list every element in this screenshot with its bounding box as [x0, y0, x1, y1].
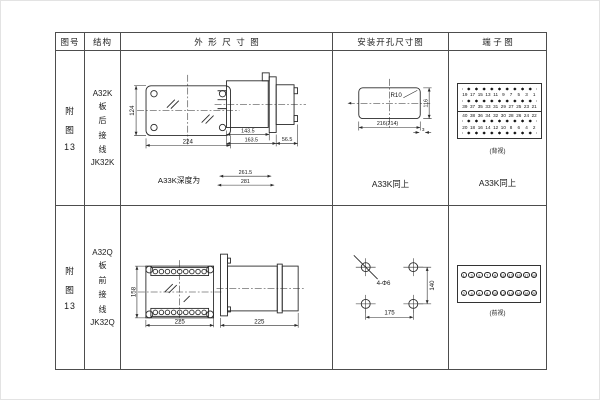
- side-view: [218, 73, 298, 133]
- terminal-number: 26: [515, 113, 523, 118]
- terminal-circle-row: 2468101214161820: [458, 290, 540, 297]
- row2-outline-drawing: 158 225 225: [121, 206, 332, 369]
- header-label: 端子图: [480, 36, 516, 48]
- terminal-number-row: 39373533312927252321: [461, 104, 538, 109]
- terminal-circle: 11: [500, 272, 507, 279]
- terminal-number: 6: [515, 125, 523, 130]
- terminal-number: 34: [484, 113, 492, 118]
- dim-label-depth1: 261.5: [239, 170, 252, 176]
- terminal-number: 4: [523, 125, 531, 130]
- terminal-circle: 3: [468, 272, 475, 279]
- terminal-number: 19: [461, 92, 469, 97]
- structure-line: 接: [99, 289, 107, 300]
- terminal-circle: 20: [531, 290, 538, 297]
- dim-label-rear-depth: 56.5: [282, 137, 292, 143]
- terminal-number: 24: [523, 113, 531, 118]
- terminal-number: 12: [492, 125, 500, 130]
- terminal-circle: 6: [476, 290, 483, 297]
- header-label: 外形尺寸图: [189, 36, 265, 48]
- terminal-number-row: 2018161412108642: [461, 125, 538, 130]
- terminal-number-row: 191715131197531: [461, 92, 538, 97]
- terminal-number: 15: [476, 92, 484, 97]
- terminal-number: 25: [515, 104, 523, 109]
- terminal-dot-row: [462, 119, 537, 123]
- structure-line: 前: [99, 275, 107, 286]
- dim-label-radius: R10: [391, 92, 403, 99]
- dim-label-case-depth: 143.5: [241, 128, 254, 134]
- dim-label-height: 158: [130, 286, 137, 297]
- install-same-note: A33K同上: [333, 178, 448, 190]
- terminal-dot-row: [462, 87, 537, 91]
- row2-terminal-cell: 135791113151719 2468101214161820 (前视): [449, 206, 546, 369]
- spec-sheet-page: 图号 结构 外形尺寸图 安装开孔尺寸图 端子图 附图13 A32K板后接线JK3…: [0, 0, 600, 400]
- terminal-number: 30: [500, 113, 508, 118]
- terminal-circle: 8: [484, 290, 491, 297]
- structure-line: 线: [99, 304, 107, 315]
- terminal-circle-row: 135791113151719: [458, 272, 540, 279]
- terminal-number: 16: [476, 125, 484, 130]
- side-view: [221, 254, 299, 316]
- terminal-number: 7: [507, 92, 515, 97]
- terminal-dot-row: [462, 99, 537, 103]
- terminal-circle: 15: [515, 272, 522, 279]
- terminal-number: 31: [492, 104, 500, 109]
- structure: A32K板后接线JK32K: [85, 51, 120, 205]
- terminal-number: 32: [492, 113, 500, 118]
- row2-install-drawing: 4-Φ6 175 140: [333, 206, 448, 369]
- terminal-dot-row: [462, 131, 537, 135]
- row1-terminal-cell: 191715131197531 39373533312927252321 403…: [449, 51, 546, 206]
- terminal-number: 10: [500, 125, 508, 130]
- terminal-number: 40: [461, 113, 469, 118]
- row1-outline-drawing: 124 224 143.5 163.5: [121, 51, 332, 205]
- terminal-number: 36: [476, 113, 484, 118]
- header-outline: 外形尺寸图: [121, 33, 333, 51]
- row2-install-cell: 4-Φ6 175 140: [333, 206, 449, 369]
- terminal-number: 1: [530, 92, 538, 97]
- structure-line: 板: [99, 260, 107, 271]
- terminal-number: 37: [469, 104, 477, 109]
- terminal-circle: 5: [476, 272, 483, 279]
- terminal-number: 17: [469, 92, 477, 97]
- row1-structure-cell: A32K板后接线JK32K: [85, 51, 121, 206]
- dim-label-hole-height: 140: [429, 280, 436, 291]
- fig-no-line: 13: [64, 142, 76, 152]
- structure-line: 接: [99, 130, 107, 141]
- terminal-number: 14: [484, 125, 492, 130]
- dim-label-gap: 3: [422, 127, 425, 133]
- terminal-number: 22: [530, 113, 538, 118]
- terminal-number: 27: [507, 104, 515, 109]
- structure: A32Q板前接线JK32Q: [85, 206, 120, 369]
- terminal-number: 20: [461, 125, 469, 130]
- terminal-circle: 14: [507, 290, 514, 297]
- terminal-number: 29: [500, 104, 508, 109]
- terminal-number: 18: [469, 125, 477, 130]
- header-label: 结构: [93, 36, 112, 48]
- header-fig-no: 图号: [56, 33, 85, 51]
- terminal-circle: 9: [492, 272, 499, 279]
- terminal-circle: 16: [515, 290, 522, 297]
- terminal-number: 35: [476, 104, 484, 109]
- terminal-circle: 1: [461, 272, 468, 279]
- dim-label-width: 225: [175, 318, 186, 325]
- structure-line: JK32Q: [90, 318, 114, 327]
- row2-fig-no-cell: 附图13: [56, 206, 85, 369]
- terminal-circle: 7: [484, 272, 491, 279]
- row1-install-cell: R10 216(214) 116 3 A33K同上: [333, 51, 449, 206]
- terminal-circle: 4: [468, 290, 475, 297]
- dim-label-cutout-height: 116: [424, 99, 430, 108]
- terminal-number: 13: [484, 92, 492, 97]
- terminal-number: 28: [507, 113, 515, 118]
- fig-no-line: 13: [64, 301, 76, 311]
- terminal-number: 8: [507, 125, 515, 130]
- row1-fig-no-cell: 附图13: [56, 51, 85, 206]
- structure-line: JK32K: [91, 158, 115, 167]
- fig-no-line: 图: [65, 123, 75, 136]
- terminal-circle: 17: [523, 272, 530, 279]
- header-install: 安装开孔尺寸图: [333, 33, 449, 51]
- structure-line: 板: [99, 101, 107, 112]
- terminal-number: 9: [500, 92, 508, 97]
- terminal-circle: 10: [492, 290, 499, 297]
- terminal-number: 5: [515, 92, 523, 97]
- dim-label-depth2: 281: [241, 179, 250, 185]
- structure-line: A32Q: [92, 248, 112, 257]
- terminal-number: 39: [461, 104, 469, 109]
- fig-no: 附图13: [56, 206, 84, 369]
- structure-line: 线: [99, 144, 107, 155]
- dim-label-depth: 225: [254, 318, 265, 325]
- terminal-number: 2: [530, 125, 538, 130]
- header-structure: 结构: [85, 33, 121, 51]
- terminal-circle: 19: [531, 272, 538, 279]
- row2-structure-cell: A32Q板前接线JK32Q: [85, 206, 121, 369]
- terminal-diagram-rear-view: 191715131197531 39373533312927252321 403…: [457, 83, 542, 139]
- structure-line: 后: [99, 115, 107, 126]
- terminal-number: 38: [469, 113, 477, 118]
- terminal-number: 21: [530, 104, 538, 109]
- terminal-circle: 13: [507, 272, 514, 279]
- depth-note: A33K深度为: [158, 175, 200, 185]
- terminal-circle: 2: [461, 290, 468, 297]
- terminal-number: 33: [484, 104, 492, 109]
- dim-label-height: 124: [129, 105, 136, 116]
- structure-line: A32K: [93, 89, 113, 98]
- terminal-divider: [458, 111, 541, 112]
- terminal-diagram-front-view: 135791113151719 2468101214161820: [457, 265, 541, 303]
- dim-label-width: 224: [183, 138, 194, 145]
- terminal-number-row: 40383634323028262422: [461, 113, 538, 118]
- header-label: 安装开孔尺寸图: [357, 36, 424, 48]
- fig-no-line: 附: [65, 104, 75, 117]
- dim-label-flange-depth: 163.5: [245, 137, 258, 143]
- terminal-caption: (前视): [449, 308, 546, 317]
- fig-no-line: 附: [65, 264, 75, 277]
- terminal-circle: 18: [523, 290, 530, 297]
- dim-label-cutout-width: 216(214): [377, 121, 399, 127]
- row1-outline-cell: 124 224 143.5 163.5: [121, 51, 333, 206]
- spec-table: 图号 结构 外形尺寸图 安装开孔尺寸图 端子图 附图13 A32K板后接线JK3…: [55, 32, 547, 370]
- terminal-circle: 12: [500, 290, 507, 297]
- terminal-number: 23: [523, 104, 531, 109]
- fig-no-line: 图: [65, 283, 75, 296]
- terminal-same-note: A33K同上: [449, 177, 546, 189]
- header-terminal: 端子图: [449, 33, 546, 51]
- header-label: 图号: [60, 36, 79, 48]
- terminal-number: 3: [523, 92, 531, 97]
- dim-label-hole-width: 175: [384, 310, 395, 317]
- terminal-caption: (背视): [449, 146, 546, 155]
- terminal-number: 11: [492, 92, 500, 97]
- dim-label-holes: 4-Φ6: [377, 280, 391, 287]
- row2-outline-cell: 158 225 225: [121, 206, 333, 369]
- fig-no: 附图13: [56, 51, 84, 205]
